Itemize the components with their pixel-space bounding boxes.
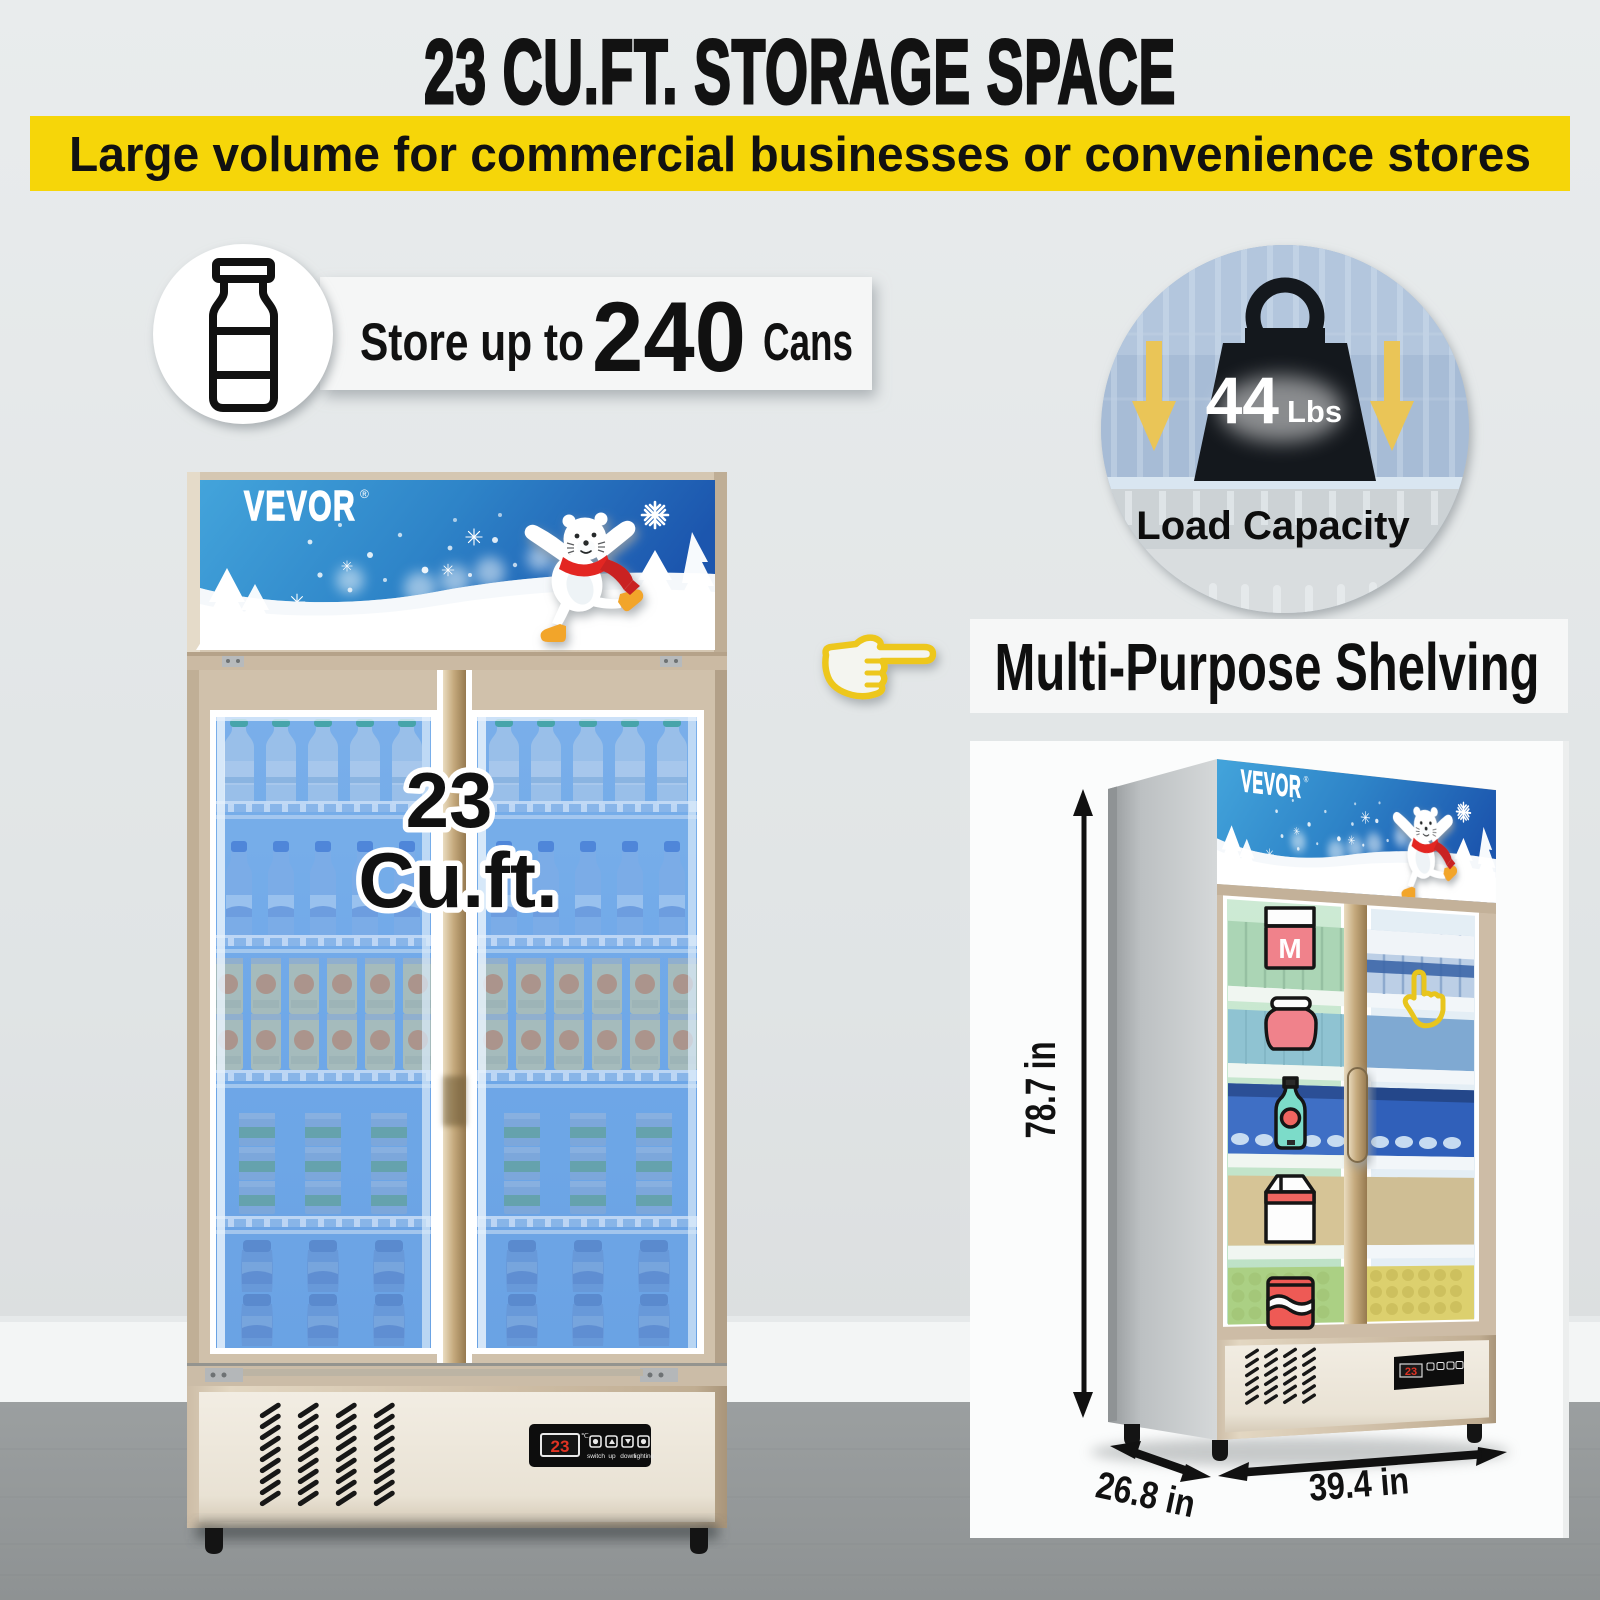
svg-text:23: 23 [551,1437,570,1456]
svg-text:23: 23 [1405,1366,1417,1378]
svg-text:39.4 in: 39.4 in [1308,1460,1411,1510]
svg-text:Store up to: Store up to [360,313,584,372]
svg-text:Multi-Purpose Shelving: Multi-Purpose Shelving [995,630,1540,705]
svg-text:Large volume for commercial bu: Large volume for commercial businesses o… [69,128,1531,182]
svg-text:Cu.ft.: Cu.ft. [358,836,557,924]
svg-text:℃: ℃ [581,1433,589,1440]
svg-text:Lbs: Lbs [1287,394,1342,429]
svg-text:23 CU.FT. STORAGE SPACE: 23 CU.FT. STORAGE SPACE [424,22,1176,123]
svg-text:78.7 in: 78.7 in [1017,1042,1065,1139]
svg-text:M: M [1278,933,1301,964]
svg-text:Load Capacity: Load Capacity [1136,504,1410,548]
svg-text:lighting: lighting [634,1453,655,1460]
svg-text:switch: switch [587,1453,605,1460]
svg-text:up: up [608,1453,616,1460]
svg-text:23: 23 [406,756,493,844]
svg-text:44: 44 [1206,363,1280,437]
svg-text:240: 240 [592,281,746,392]
svg-text:Cans: Cans [763,313,853,372]
